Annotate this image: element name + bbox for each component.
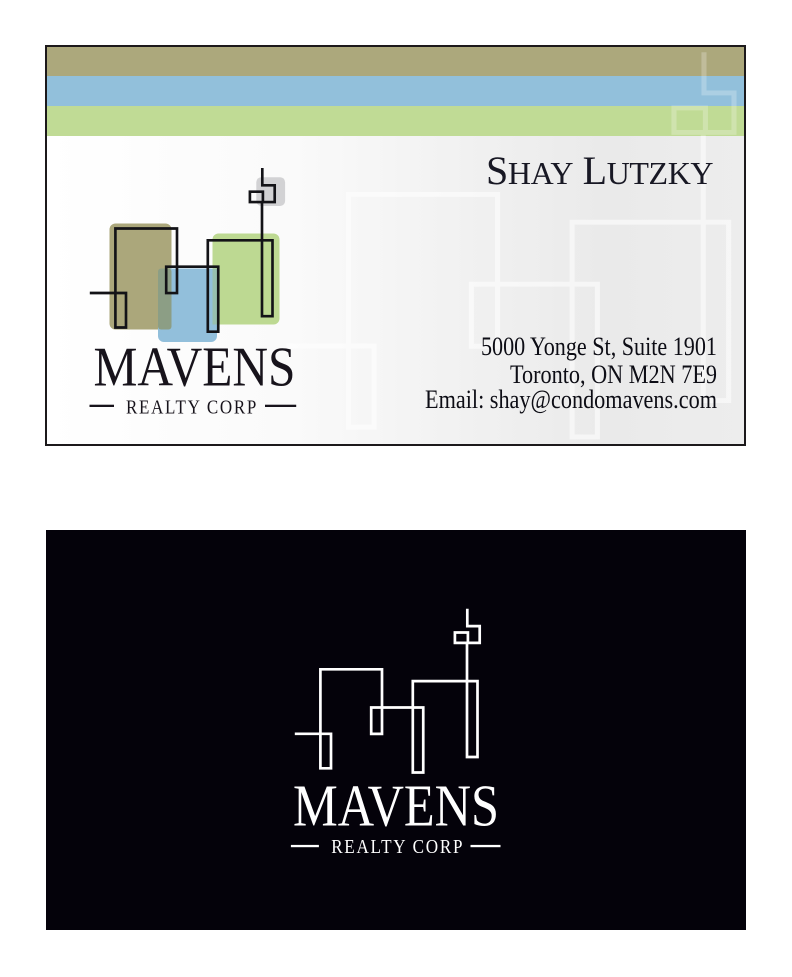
svg-text:MAVENS: MAVENS bbox=[94, 337, 296, 399]
svg-text:REALTY CORP: REALTY CORP bbox=[331, 836, 464, 858]
svg-text:SHAY LUTZKY: SHAY LUTZKY bbox=[486, 148, 713, 193]
svg-text:Email: shay@condomavens.com: Email: shay@condomavens.com bbox=[425, 385, 717, 414]
svg-text:5000 Yonge St, Suite 1901: 5000 Yonge St, Suite 1901 bbox=[481, 332, 717, 361]
svg-text:MAVENS: MAVENS bbox=[293, 772, 499, 838]
svg-text:REALTY CORP: REALTY CORP bbox=[126, 397, 258, 419]
